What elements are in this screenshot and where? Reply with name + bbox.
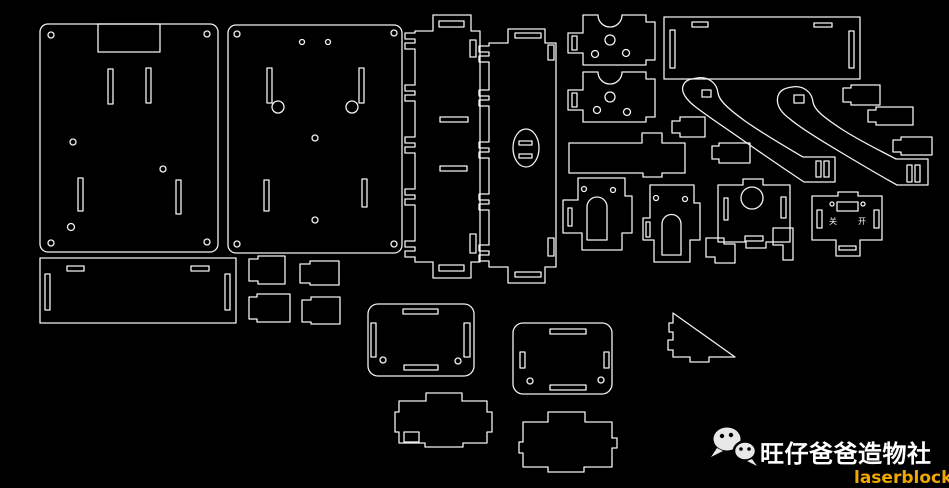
brand-name: laserblock (854, 468, 949, 488)
switch-off-engraving: 关 (829, 216, 837, 226)
studio-name: 旺仔爸爸造物社 (760, 440, 932, 468)
laser-cut-layout: 关 开 (0, 0, 949, 488)
switch-on-engraving: 开 (858, 217, 866, 226)
drawing-background (0, 0, 949, 488)
